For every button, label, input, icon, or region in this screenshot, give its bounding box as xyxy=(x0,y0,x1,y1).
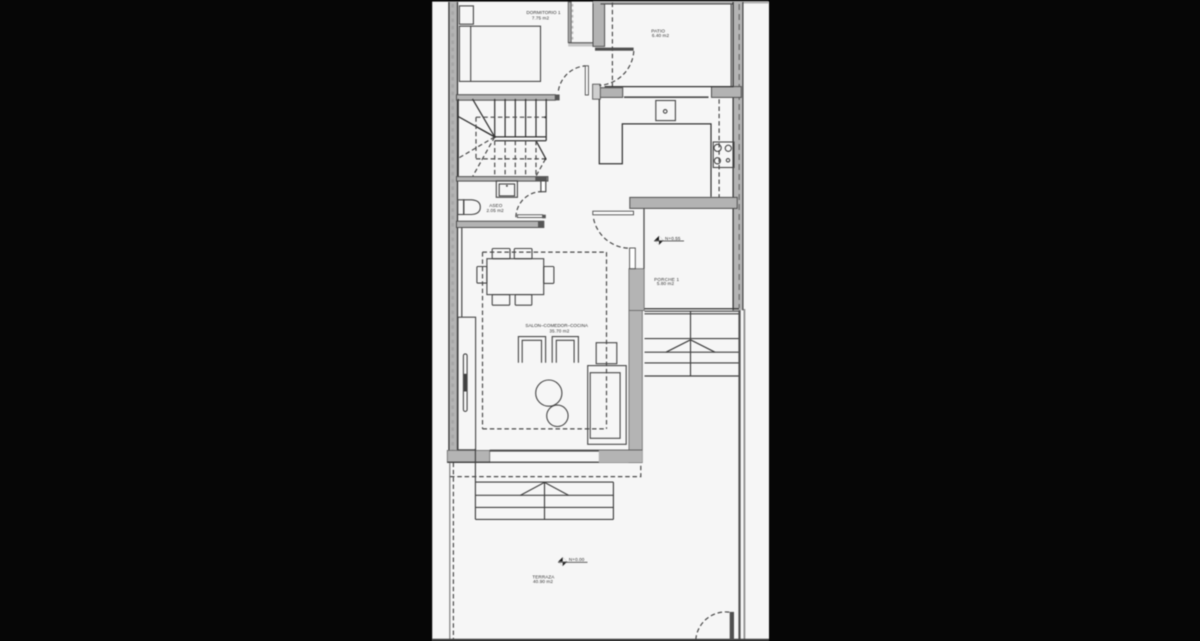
svg-text:35.70 m2: 35.70 m2 xyxy=(549,328,569,333)
svg-text:SALON–COMEDOR–COCINA: SALON–COMEDOR–COCINA xyxy=(525,323,588,328)
svg-text:6.40 m2: 6.40 m2 xyxy=(652,33,670,38)
svg-text:5.80 m2: 5.80 m2 xyxy=(657,281,675,286)
svg-text:7.75 m2: 7.75 m2 xyxy=(532,16,550,21)
svg-text:2.05 m2: 2.05 m2 xyxy=(487,208,505,213)
svg-text:40.90 m2: 40.90 m2 xyxy=(533,579,553,584)
svg-text:N+0.00: N+0.00 xyxy=(569,557,585,562)
svg-text:N+0.55: N+0.55 xyxy=(665,236,681,241)
svg-text:DORMITORIO 1: DORMITORIO 1 xyxy=(526,10,561,15)
